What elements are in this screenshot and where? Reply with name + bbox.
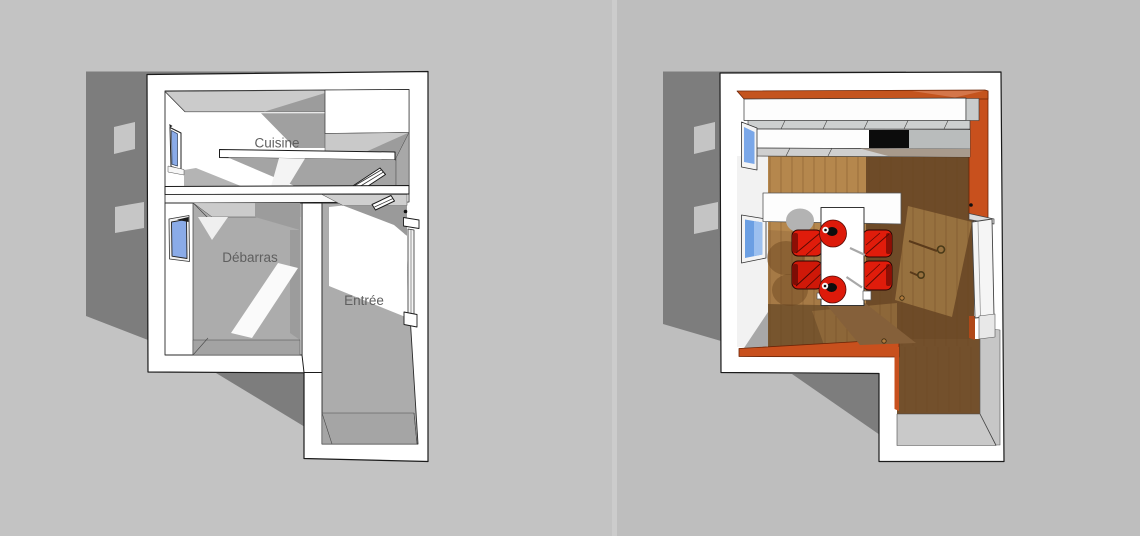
- svg-text:Cuisine: Cuisine: [254, 136, 299, 151]
- svg-text:Entrée: Entrée: [344, 293, 384, 308]
- svg-text:Débarras: Débarras: [222, 250, 278, 265]
